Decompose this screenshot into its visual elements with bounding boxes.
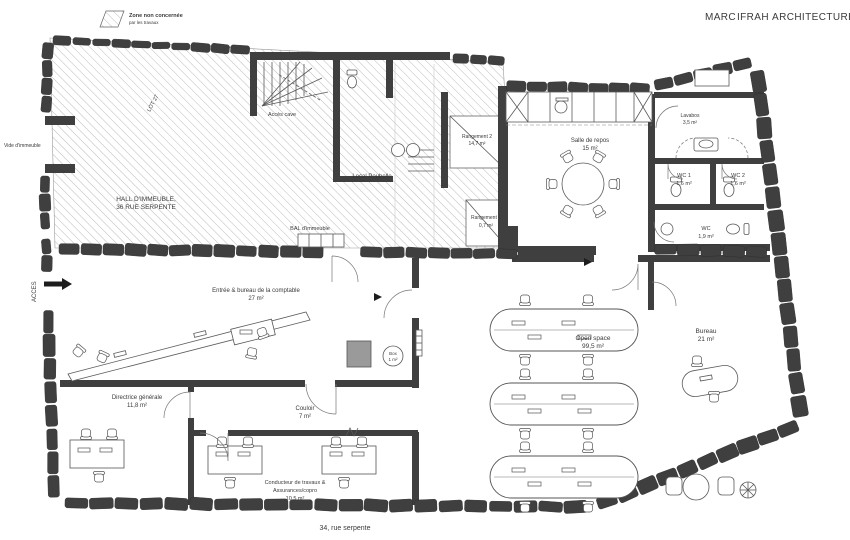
stone [48,452,59,474]
room-lavabos-name: Lavabos [681,113,700,119]
stone [339,499,363,511]
stone [236,245,256,256]
stone [453,54,469,64]
room-rangement2-name: Rangement 2 [462,134,492,140]
stone [547,81,567,92]
stone [211,43,230,54]
stone [213,244,235,257]
room-open-space-name: Open space [575,335,610,342]
legend: Zone non concernée par les travaux [100,11,183,27]
chair-icon [71,343,86,358]
room-rangement1-name: Rangement 1 [471,215,501,221]
chair-icon [107,429,118,440]
stone [44,310,54,333]
chair-seat [521,431,530,439]
stone [47,429,58,450]
chair-icon [243,437,254,448]
chair-seat [549,180,557,189]
flow-arrow-icon [374,293,382,301]
stone [172,43,190,50]
monitor-icon [100,448,112,452]
chair-icon [692,356,703,367]
chair-icon [547,179,558,190]
chair-seat [584,442,593,450]
chair-seat [247,347,257,356]
entrance-arrow-icon [44,278,72,290]
stone [568,82,588,93]
stone [756,428,779,446]
chair-icon [520,502,531,513]
logo-ifrah: IFRAH [737,12,769,23]
chair-icon [583,355,594,366]
monitor-icon [330,452,342,456]
monitor-icon [528,409,541,413]
stone [360,246,382,257]
stone [767,209,785,232]
stone [701,244,722,256]
stone [239,498,262,510]
toilet-icon [347,70,357,88]
stone [746,246,767,258]
stone [192,244,213,257]
stone [673,72,693,87]
acces-label: ACCES [32,281,38,302]
stone [762,163,778,186]
room-open-space-area: 99,5 m² [582,343,605,350]
chair-seat [521,369,530,377]
chair-seat [226,480,235,488]
stone [48,475,60,497]
stone [406,247,428,259]
chair-seat [521,357,530,365]
room-box-area: 1 m² [389,357,399,362]
chair-icon [591,204,606,219]
stone [230,45,249,55]
chair-icon [583,502,594,513]
monitor-icon [578,409,591,413]
monitor-icon [562,395,575,399]
stone [783,326,798,348]
monitor-icon [512,468,525,472]
stone [464,500,486,513]
desk [208,446,262,474]
chair-seat [332,437,341,445]
chair-icon [583,295,594,306]
stone [589,83,609,92]
chair-seat [358,437,367,445]
stone [732,57,752,71]
room-directrice-area: 11,8 m² [127,403,147,409]
stone [40,176,49,193]
room-wc1-area: 1,6 m² [676,181,692,187]
room-conducteur-area: 10,5 m² [286,496,305,502]
stone [45,405,58,427]
room-box-name: Box [389,351,398,356]
chair-seat [244,437,253,445]
stone [489,501,512,511]
stone [140,498,163,510]
chair-seat [693,356,702,364]
stone [280,246,301,258]
stone [73,37,91,45]
chair-seat [108,429,117,437]
room-couloir-area: 7 m² [299,414,311,420]
copier-icon [347,341,371,367]
meeting-table [562,163,604,205]
stone [41,96,52,113]
room-wc-name: WC [701,226,710,232]
local-poubelle-label: Local Poubelle [352,174,392,180]
stone [654,244,676,254]
hall-label-2: 36 RUE SERPENTE [116,204,176,211]
chair-seat [584,357,593,365]
stone [44,358,56,379]
chair-icon [357,437,368,448]
chair-seat [95,474,104,482]
room-wc2-area: 1,6 m² [730,181,746,187]
stone [756,117,772,139]
stone [39,194,51,212]
stone [776,420,799,439]
stone [364,498,389,512]
room-entree-area: 27 m² [248,296,263,302]
chair-icon [583,442,594,453]
stone [750,70,767,94]
stone [264,499,288,511]
stone [169,245,191,257]
stone [788,372,805,395]
hall-label-1: HALL D'IMMEUBLE, [116,196,176,203]
room-wc2-name: WC 2 [731,173,745,179]
reception-desk [68,312,310,381]
chair-icon [560,204,575,219]
stone [414,499,437,512]
stone [53,35,71,45]
chair-seat [521,504,530,512]
stone [696,451,718,470]
chair-icon [583,369,594,380]
stone [715,443,740,464]
stone [59,244,79,255]
stone [131,41,151,48]
room-bureau-name: Bureau [696,328,717,335]
stone [65,498,88,509]
chair-seat [584,504,593,512]
floor-plan-page: Zone non concernée par les travaux MARC … [0,0,850,540]
stone [779,302,796,325]
room-wc1-name: WC 1 [677,173,691,179]
stone [41,255,52,271]
stone [41,78,53,95]
chair-icon [520,369,531,380]
stone [314,498,337,511]
street-label: 34, rue serpente [320,525,371,532]
logo-marc: MARC [705,12,736,23]
chair-seat [584,369,593,377]
monitor-icon [578,482,591,486]
stone [786,348,801,371]
stone [42,42,54,59]
chair-icon [94,472,105,483]
stone [164,497,188,511]
room-entree-name: Entrée & bureau de la comptable [212,288,300,294]
stone [147,244,168,256]
stone [677,244,699,256]
plant-icon [740,482,756,498]
stone [771,232,788,256]
stone [496,249,517,259]
chair-icon [520,295,531,306]
room-bureau-area: 21 m² [698,336,715,343]
stone [115,497,138,509]
stone [759,140,775,163]
chair-icon [245,347,258,359]
room-wc-area: 1,9 m² [698,234,714,240]
stone [303,246,324,259]
monitor-icon [240,330,252,334]
chair-icon [520,442,531,453]
chair-icon [225,478,236,489]
room-salle-area: 15 m² [582,146,597,152]
stone [774,256,790,279]
room-conducteur-name2: Assurances/copro [273,488,317,494]
monitor-icon [216,452,228,456]
architect-logo: MARC IFRAH ARCHITECTURE [705,12,850,23]
room-lavabos-area: 3,5 m² [683,120,698,126]
stone [765,186,781,209]
chair-seat [609,180,617,189]
stone [103,243,124,255]
monitor-icon [528,482,541,486]
monitor-icon [512,321,525,325]
stone [389,499,413,513]
kitchen-counter [506,92,652,125]
logo-architecture: ARCHITECTURE [772,12,850,23]
stone [125,243,147,257]
radiator-icon [416,330,422,356]
desk [231,319,276,345]
chair-icon [520,355,531,366]
floor-plan-drawing: Zone non concernée par les travaux MARC … [0,0,850,540]
box-booth [383,346,403,366]
legend-line1: Zone non concernée [129,13,183,19]
stone [42,60,52,77]
stone [383,247,404,258]
chair-seat [521,442,530,450]
stone [214,498,238,510]
desk [322,446,376,474]
stone [191,42,211,52]
chair-seat [521,295,530,303]
stone [538,501,562,513]
chair-seat [584,295,593,303]
acces-cave-label: Accès cave [268,112,296,118]
stone [439,500,463,512]
monitor-icon [562,321,575,325]
stone [43,334,55,357]
room-rangement2-area: 14,7 m² [469,141,486,147]
bal-label: BAL d'immeuble [290,226,330,232]
room-conducteur-name: Conducteur de travaux & [265,480,326,486]
monitor-icon [512,395,525,399]
chair-seat [584,431,593,439]
stone [152,42,170,49]
stone [753,93,769,117]
hatched-zone [50,38,505,248]
stone [736,435,760,455]
monitor-icon [78,448,90,452]
stone [112,39,131,48]
stone [473,248,495,258]
stone [89,497,113,509]
monitor-icon [528,335,541,339]
chair-icon [217,437,228,448]
stone [93,39,111,46]
chair-icon [560,150,575,165]
stone [189,497,212,511]
room-rangement1-area: 0,7 m² [479,223,494,229]
stone [723,245,745,258]
chair-icon [609,179,620,190]
stone [527,82,547,91]
stone [790,395,809,418]
stone [451,248,473,258]
stone [41,239,51,255]
chair-icon [339,478,350,489]
chair-seat [82,429,91,437]
lounge-corner [666,474,734,500]
chair-icon [520,429,531,440]
stone [777,279,793,303]
stone [81,243,102,255]
chair-icon [81,429,92,440]
mailboxes-icon [298,234,344,247]
desk [70,440,124,468]
stone [258,245,278,258]
monitor-icon [238,452,250,456]
chair-seat [340,480,349,488]
stone [428,247,450,258]
monitor-icon [562,468,575,472]
chair-icon [95,350,109,364]
stone [40,212,50,229]
stone [44,381,56,403]
stone [488,55,505,65]
chair-seat [710,394,719,402]
room-salle-name: Salle de repos [571,138,609,144]
stone [470,55,487,65]
stone [636,475,660,496]
stone [654,77,674,91]
monitor-icon [352,452,364,456]
chair-icon [331,437,342,448]
chair-icon [709,392,720,403]
stone [506,81,526,92]
legend-line2: par les travaux [129,20,159,25]
vide-label: Vide d'immeuble [4,143,41,149]
room-couloir-name: Couloir [295,406,314,412]
chair-icon [583,429,594,440]
room-directrice-name: Directrice générale [112,395,163,401]
